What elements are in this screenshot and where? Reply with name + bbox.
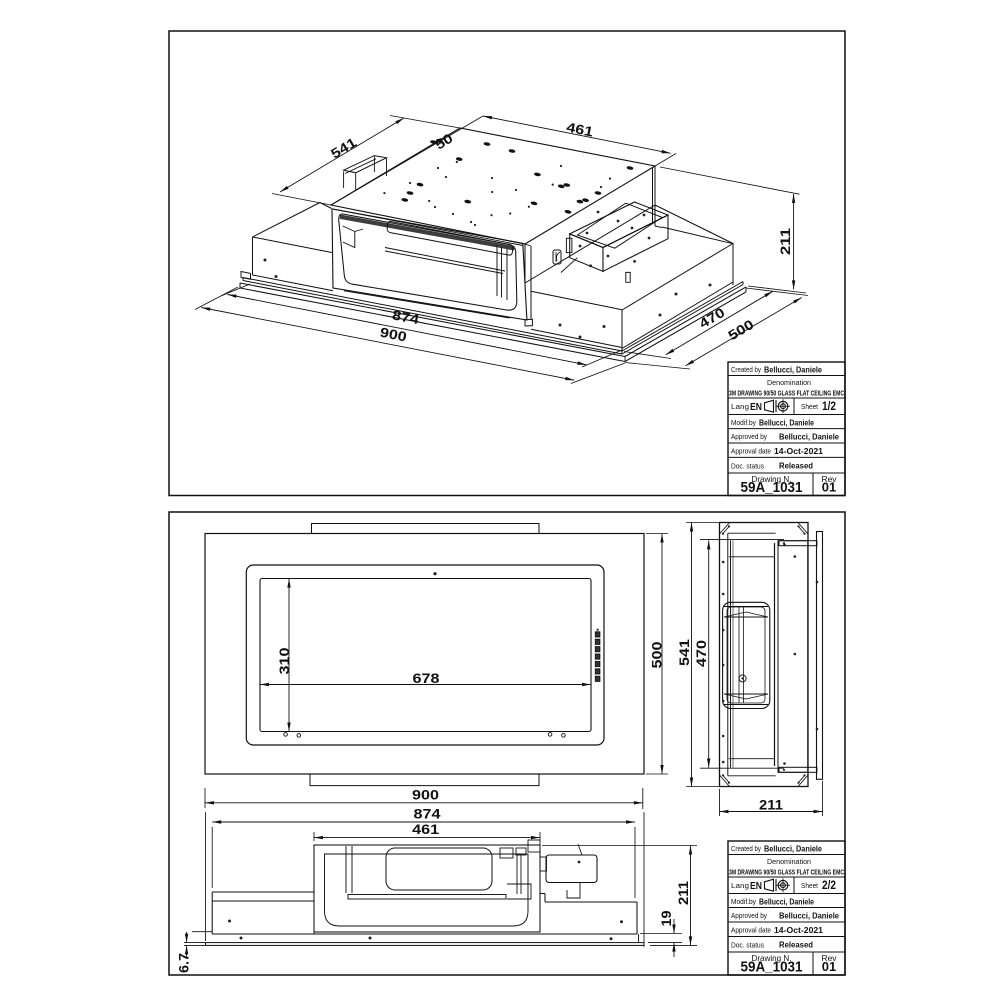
svg-text:01: 01	[822, 480, 836, 495]
svg-text:3M DRAWING 90/50 GLASS FLAT CE: 3M DRAWING 90/50 GLASS FLAT CEILING EMC	[729, 389, 844, 398]
svg-text:14-Oct-2021: 14-Oct-2021	[774, 925, 823, 935]
svg-text:Modif.by: Modif.by	[731, 897, 756, 906]
svg-text:461: 461	[412, 822, 440, 837]
svg-text:Modif.by: Modif.by	[731, 418, 756, 427]
svg-text:310: 310	[277, 648, 292, 675]
svg-text:Bellucci, Daniele: Bellucci, Daniele	[779, 432, 839, 442]
svg-text:541: 541	[677, 638, 692, 666]
svg-text:Approval date: Approval date	[731, 447, 771, 456]
svg-text:EN: EN	[750, 881, 762, 892]
svg-text:470: 470	[694, 640, 709, 667]
svg-text:EN: EN	[750, 402, 762, 413]
svg-text:Approval date: Approval date	[731, 926, 771, 935]
svg-text:678: 678	[413, 671, 441, 686]
svg-text:Lang: Lang	[731, 881, 749, 890]
svg-text:Released: Released	[779, 940, 813, 950]
svg-text:211: 211	[676, 880, 691, 905]
svg-text:Bellucci, Daniele: Bellucci, Daniele	[759, 897, 814, 907]
svg-text:Denomination: Denomination	[767, 378, 811, 387]
svg-text:211: 211	[759, 797, 784, 812]
svg-text:Lang: Lang	[731, 402, 749, 411]
svg-text:874: 874	[414, 806, 442, 821]
svg-text:3M DRAWING 90/50 GLASS FLAT CE: 3M DRAWING 90/50 GLASS FLAT CEILING EMC	[729, 868, 844, 877]
svg-text:900: 900	[412, 788, 439, 803]
svg-text:1/2: 1/2	[822, 401, 836, 413]
svg-text:19: 19	[659, 911, 674, 927]
svg-text:59A_1031: 59A_1031	[741, 959, 803, 976]
svg-text:Released: Released	[779, 460, 813, 470]
svg-text:Bellucci, Daniele: Bellucci, Daniele	[764, 365, 822, 375]
svg-text:211: 211	[778, 227, 793, 255]
svg-text:14-Oct-2021: 14-Oct-2021	[774, 446, 823, 456]
svg-text:59A_1031: 59A_1031	[741, 479, 803, 496]
svg-text:Sheet: Sheet	[801, 881, 819, 890]
svg-text:Sheet: Sheet	[801, 402, 819, 411]
svg-text:Bellucci, Daniele: Bellucci, Daniele	[759, 418, 814, 428]
svg-text:2/2: 2/2	[822, 880, 836, 892]
svg-text:Bellucci, Daniele: Bellucci, Daniele	[779, 911, 839, 921]
svg-text:Created by: Created by	[731, 365, 761, 374]
svg-text:01: 01	[822, 959, 836, 974]
svg-text:Approved by: Approved by	[731, 432, 767, 441]
svg-text:Doc. status: Doc. status	[731, 941, 764, 950]
svg-text:Approved by: Approved by	[731, 911, 767, 920]
svg-text:Doc. status: Doc. status	[731, 461, 764, 470]
svg-text:Denomination: Denomination	[767, 857, 811, 866]
svg-text:6.7: 6.7	[177, 953, 192, 973]
svg-text:Created by: Created by	[731, 844, 761, 853]
svg-text:500: 500	[650, 642, 665, 669]
svg-text:Bellucci, Daniele: Bellucci, Daniele	[764, 844, 822, 854]
